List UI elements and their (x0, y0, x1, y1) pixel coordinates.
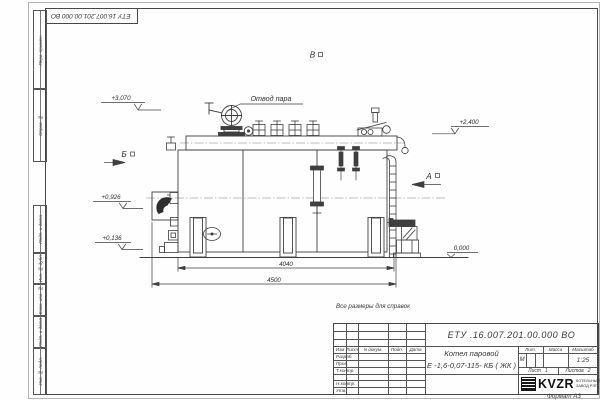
drawing-sheet: 4040 4500 +3,070 +2,400 +0,926 +0,136 0,… (0, 0, 600, 400)
tb-lit-label: Лит. (518, 346, 543, 353)
stamp-inv-dubl: Инв. № дубл. (33, 252, 47, 285)
reference-note: Все размеры для справок (336, 303, 410, 310)
flipped-designation-text: ЕТУ 16.007.201.00.000 ВО (51, 12, 131, 19)
title-block: ЕТУ .16.007.201.00.000 ВО Котел паровой … (333, 323, 599, 395)
tb-sheet-cell: Лист 1 (518, 367, 558, 374)
stamp-vzam-inv: Взам. инв. № (33, 283, 47, 317)
firm-logo: KVZR КОТЕЛЬНЫЙ ЗАВОД РЭП (518, 374, 600, 394)
flipped-designation-box: ЕТУ 16.007.201.00.000 ВО (45, 8, 138, 24)
tb-row-utv: Утв. (334, 387, 360, 394)
stamp-perv-primen: Перв. примен. (33, 10, 47, 90)
tb-product-name-2: Е -1,6-0,07-115- КБ ( ЖК ) (425, 359, 518, 372)
tb-row-razrab: Разраб. (334, 353, 360, 360)
tb-row-prov: Пров. (334, 360, 360, 367)
tb-designation: ЕТУ .16.007.201.00.000 ВО (425, 324, 598, 346)
tb-sheets-total-cell: Листов 2 (558, 367, 598, 374)
format-label: Формат А3 (547, 393, 581, 400)
stamp-podp-data-1: Подп. и дата (33, 205, 47, 254)
tb-col-izm: Изм (334, 346, 346, 353)
tb-mass-label: Масса (543, 346, 568, 353)
stamp-sprav-no: Справ. № (33, 88, 47, 162)
kvzr-logo-icon (521, 377, 536, 391)
tb-col-list: Лист (346, 346, 358, 353)
tb-scale-value: 1:25 (568, 353, 598, 367)
tb-col-doc: N докум. (358, 346, 388, 353)
kvzr-logo-text: KVZR (538, 377, 574, 391)
tb-col-podp: Подп. (388, 346, 406, 353)
stamp-podp-data-2: Подп. и дата (33, 315, 47, 349)
kvzr-logo-caption: КОТЕЛЬНЫЙ ЗАВОД РЭП (576, 379, 600, 388)
tb-scale-label: Масштаб (568, 346, 598, 353)
tb-lit-value: М (518, 353, 526, 367)
tb-col-data: Дата (406, 346, 425, 353)
tb-row-nkontr: Н.контр. (334, 380, 360, 387)
stamp-inv-podl: Инв. № подл. (33, 347, 47, 395)
tb-row-tkontr: Т.контр. (334, 367, 360, 374)
